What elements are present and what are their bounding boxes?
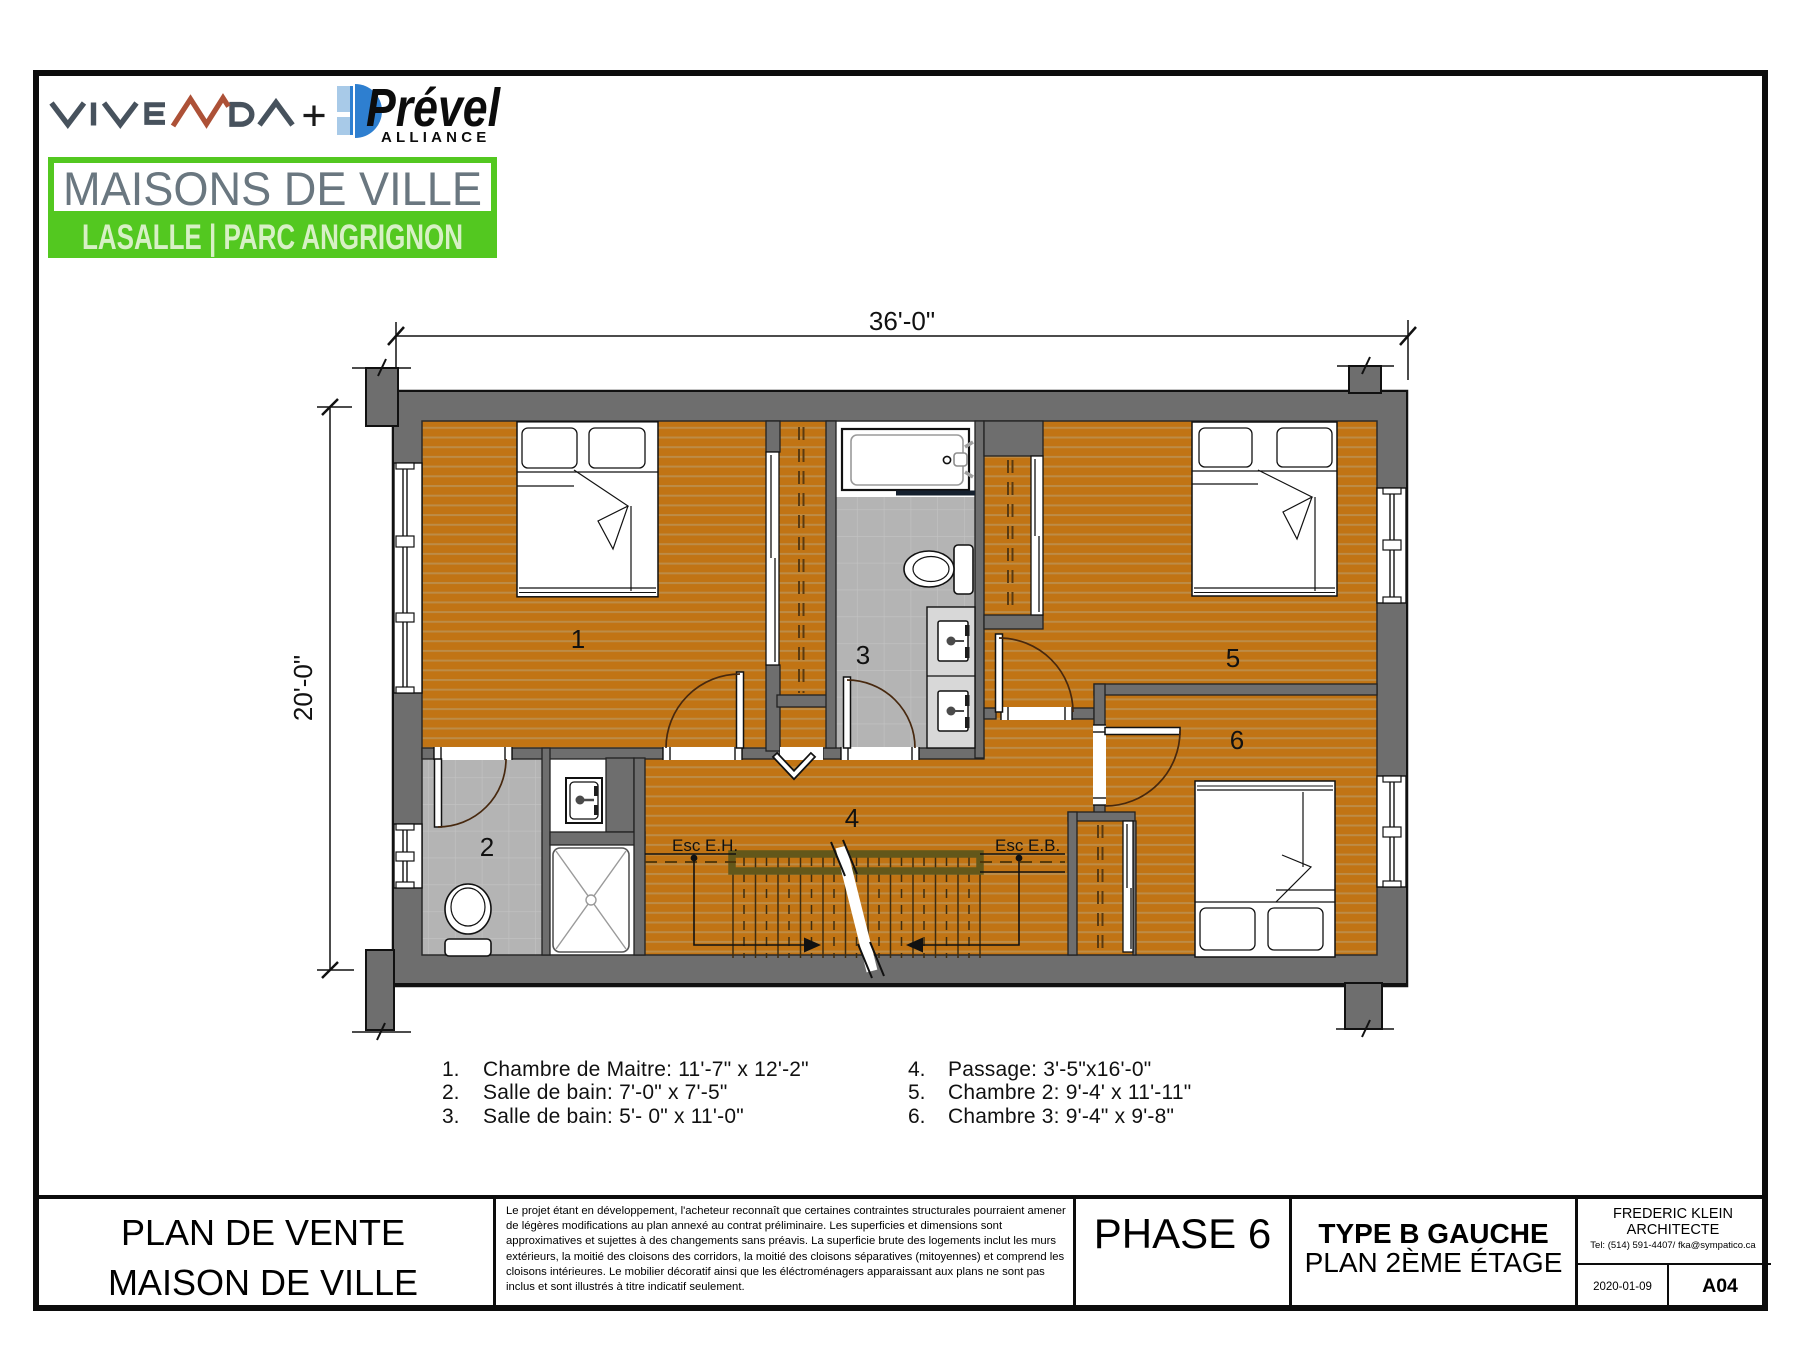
svg-text:LASALLE | PARC ANGRIGNON: LASALLE | PARC ANGRIGNON [82, 218, 463, 257]
svg-text:Esc E.H.: Esc E.H. [672, 836, 738, 855]
svg-text:MAISONS DE VILLE: MAISONS DE VILLE [63, 162, 482, 215]
svg-text:2: 2 [480, 832, 494, 862]
svg-text:4: 4 [845, 803, 859, 833]
svg-text:6: 6 [1230, 725, 1244, 755]
svg-text:5: 5 [1226, 643, 1240, 673]
svg-text:Esc E.B.: Esc E.B. [995, 836, 1060, 855]
svg-text:1: 1 [571, 624, 585, 654]
svg-text:20'-0": 20'-0" [288, 655, 318, 721]
svg-text:ALLIANCE: ALLIANCE [381, 129, 490, 146]
svg-text:36'-0": 36'-0" [869, 306, 935, 336]
svg-text:3: 3 [856, 640, 870, 670]
